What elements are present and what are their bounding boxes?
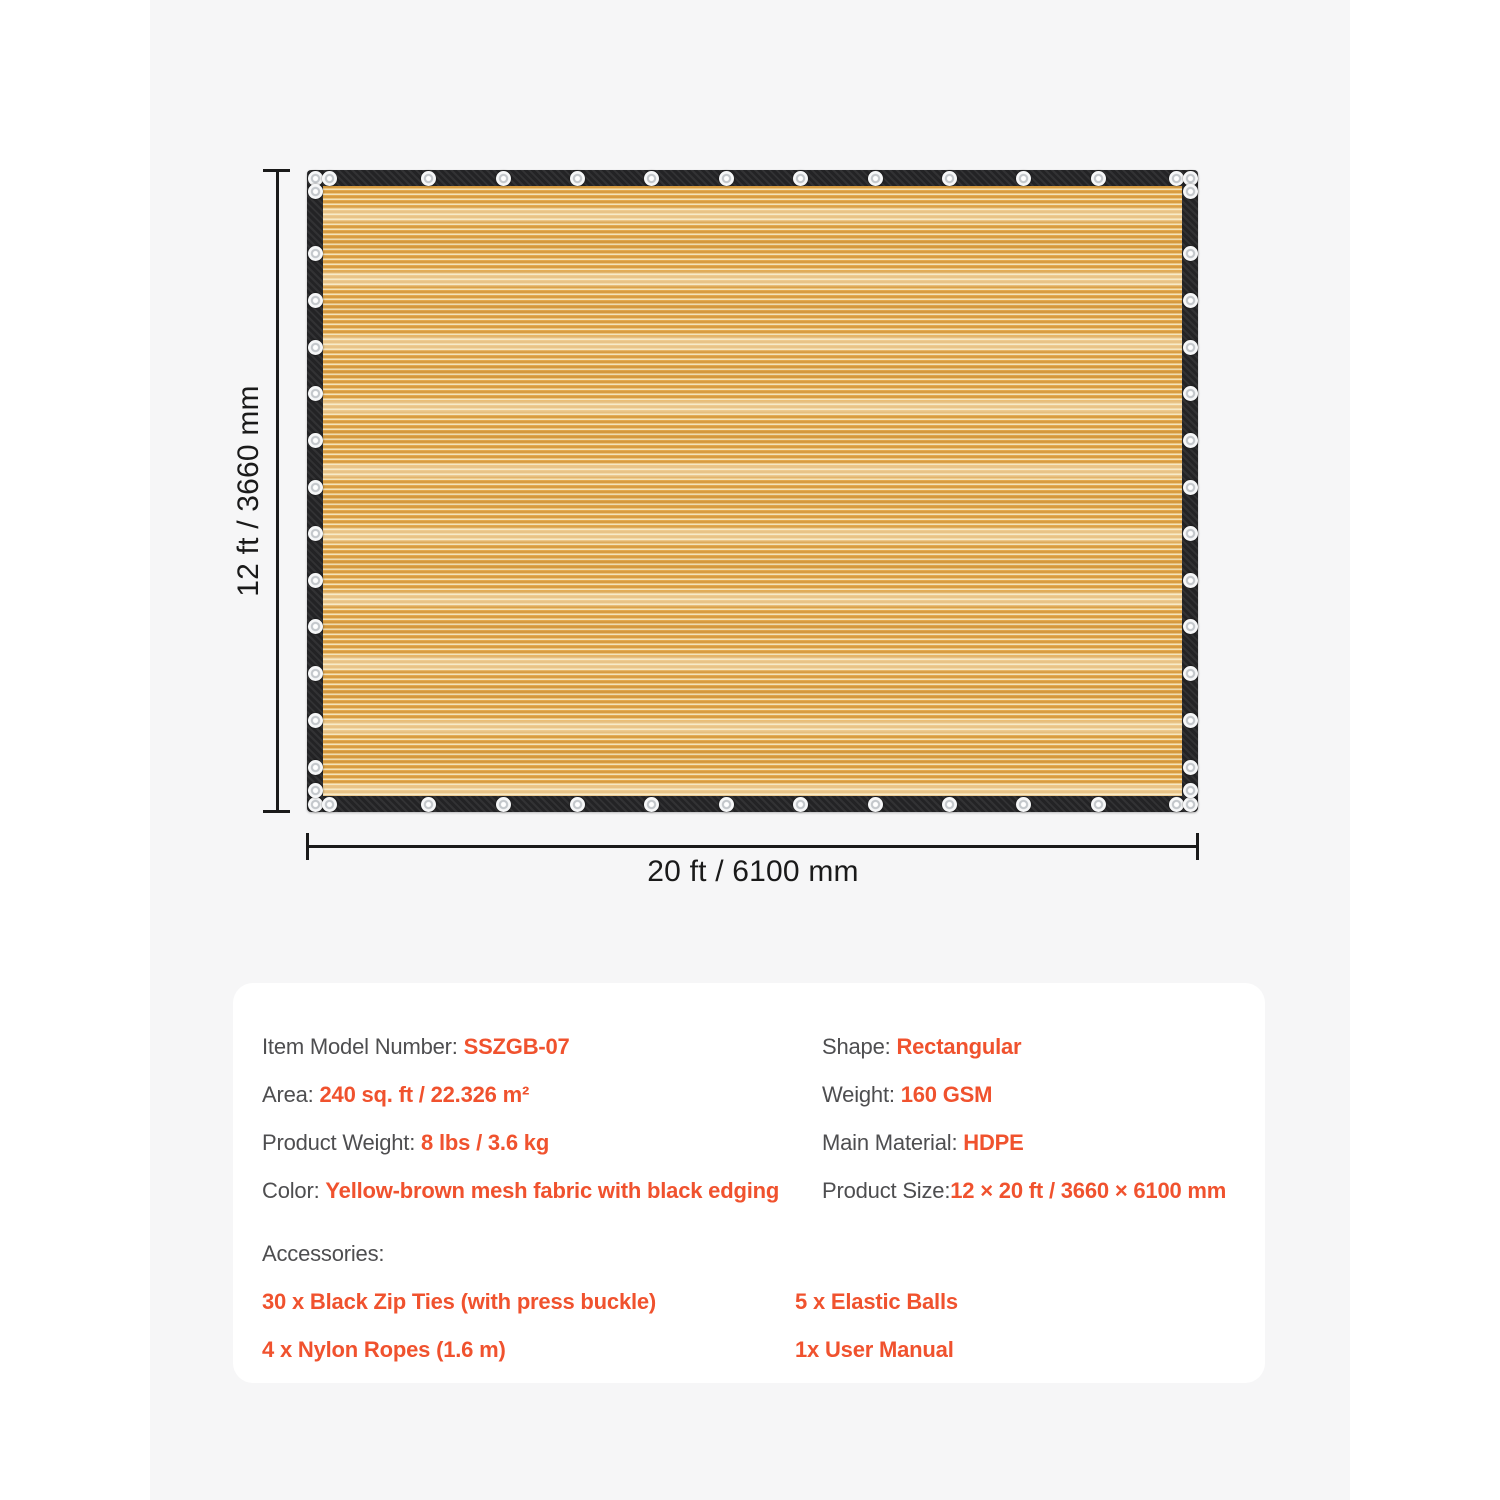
spec-value: 8 lbs / 3.6 kg <box>421 1130 549 1155</box>
grommet-icon <box>1016 797 1031 812</box>
spec-row-shape: Shape: Rectangular <box>822 1036 1226 1040</box>
accessory-text: 5 x Elastic Balls <box>795 1289 958 1314</box>
spec-label: Item Model Number: <box>262 1034 464 1059</box>
grommet-icon <box>1183 433 1198 448</box>
accessory-item-elastic-balls: 5 x Elastic Balls <box>795 1291 958 1295</box>
grommet-icon <box>308 713 323 728</box>
grommet-icon <box>308 760 323 775</box>
grommet-icon <box>308 293 323 308</box>
grommet-icon <box>1183 783 1198 798</box>
accessories-grid: 30 x Black Zip Ties (with press buckle) … <box>262 1269 958 1365</box>
accessory-item-zip-ties: 30 x Black Zip Ties (with press buckle) <box>262 1291 795 1295</box>
grommet-icon <box>1183 171 1198 186</box>
grommet-icon <box>570 171 585 186</box>
grommet-icon <box>322 171 337 186</box>
width-dimension-cap-right <box>1196 833 1199 860</box>
grommet-icon <box>308 480 323 495</box>
grommet-icon <box>1183 184 1198 199</box>
grommet-icon <box>308 619 323 634</box>
grommet-icon <box>308 171 323 186</box>
spec-label: Main Material: <box>822 1130 963 1155</box>
grommet-icon <box>1183 760 1198 775</box>
spec-value: 12 × 20 ft / 3660 × 6100 mm <box>950 1178 1226 1203</box>
spec-value: HDPE <box>963 1130 1023 1155</box>
grommet-icon <box>308 386 323 401</box>
grommet-icon <box>1183 619 1198 634</box>
grommet-icon <box>570 797 585 812</box>
grommet-icon <box>421 171 436 186</box>
grommet-icon <box>1183 666 1198 681</box>
grommet-icon <box>308 526 323 541</box>
grommet-icon <box>308 797 323 812</box>
spec-value: 160 GSM <box>901 1082 993 1107</box>
grommet-icon <box>868 171 883 186</box>
grommet-icon <box>1169 171 1184 186</box>
spec-label: Weight: <box>822 1082 901 1107</box>
grommet-icon <box>1183 573 1198 588</box>
shade-cloth-image <box>307 170 1198 812</box>
spec-value: Rectangular <box>896 1034 1021 1059</box>
accessory-text: 30 x Black Zip Ties (with press buckle) <box>262 1289 656 1314</box>
spec-row-product-size: Product Size:12 × 20 ft / 3660 × 6100 mm <box>822 1180 1226 1184</box>
height-dimension-label: 12 ft / 3660 mm <box>232 385 266 596</box>
spec-label: Shape: <box>822 1034 896 1059</box>
specs-grid: Item Model Number: SSZGB-07 Area: 240 sq… <box>262 1014 1226 1206</box>
grommet-icon <box>644 797 659 812</box>
grommet-icon <box>942 797 957 812</box>
spec-row-color: Color: Yellow-brown mesh fabric with bla… <box>262 1180 822 1184</box>
grommet-icon <box>496 797 511 812</box>
grommet-icon <box>644 171 659 186</box>
grommet-icon <box>496 171 511 186</box>
specs-panel: Item Model Number: SSZGB-07 Area: 240 sq… <box>233 983 1265 1383</box>
grommet-icon <box>322 797 337 812</box>
grommet-icon <box>308 246 323 261</box>
accessory-text: 1x User Manual <box>795 1337 954 1362</box>
spec-value: 240 sq. ft / 22.326 m² <box>320 1082 530 1107</box>
accessory-item-user-manual: 1x User Manual <box>795 1339 958 1343</box>
width-dimension-label: 20 ft / 6100 mm <box>647 855 858 889</box>
spec-value: Yellow-brown mesh fabric with black edgi… <box>325 1178 779 1203</box>
spec-row-weight: Weight: 160 GSM <box>822 1084 1226 1088</box>
spec-label: Area: <box>262 1082 320 1107</box>
grommet-icon <box>308 433 323 448</box>
grommet-icon <box>1016 171 1031 186</box>
grommet-icon <box>421 797 436 812</box>
spec-label: Product Size: <box>822 1178 950 1203</box>
grommet-icon <box>1169 797 1184 812</box>
height-dimension-line <box>276 170 279 813</box>
grommet-icon <box>1091 797 1106 812</box>
mesh-fabric-texture <box>323 186 1182 796</box>
grommet-icon <box>719 797 734 812</box>
spec-row-item-model-number: Item Model Number: SSZGB-07 <box>262 1036 822 1040</box>
grommet-icon <box>1183 246 1198 261</box>
grommet-icon <box>308 340 323 355</box>
grommet-icon <box>1183 797 1198 812</box>
accessory-item-nylon-ropes: 4 x Nylon Ropes (1.6 m) <box>262 1339 795 1343</box>
grommet-icon <box>1183 713 1198 728</box>
grommet-icon <box>1183 340 1198 355</box>
height-dimension-cap-top <box>263 169 290 172</box>
grommet-icon <box>308 666 323 681</box>
spec-row-main-material: Main Material: HDPE <box>822 1132 1226 1136</box>
product-spec-infographic: 12 ft / 3660 mm 20 ft / 6100 mm Item Mod… <box>0 0 1500 1500</box>
spec-row-product-weight: Product Weight: 8 lbs / 3.6 kg <box>262 1132 822 1136</box>
spec-value: SSZGB-07 <box>464 1034 570 1059</box>
spec-label: Product Weight: <box>262 1130 421 1155</box>
accessories-title: Accessories: <box>262 1243 384 1265</box>
grommet-icon <box>1183 480 1198 495</box>
width-dimension-cap-left <box>306 833 309 860</box>
grommet-icon <box>719 171 734 186</box>
grommet-icon <box>308 184 323 199</box>
grommet-icon <box>868 797 883 812</box>
spec-label: Color: <box>262 1178 325 1203</box>
grommet-icon <box>1183 293 1198 308</box>
height-dimension-cap-bottom <box>263 810 290 813</box>
grommet-icon <box>942 171 957 186</box>
spec-row-area: Area: 240 sq. ft / 22.326 m² <box>262 1084 822 1088</box>
grommet-icon <box>793 797 808 812</box>
accessory-text: 4 x Nylon Ropes (1.6 m) <box>262 1337 506 1362</box>
grommet-icon <box>308 573 323 588</box>
grommet-icon <box>1091 171 1106 186</box>
width-dimension-line <box>307 845 1198 848</box>
grommet-icon <box>793 171 808 186</box>
grommet-icon <box>308 783 323 798</box>
grommet-icon <box>1183 526 1198 541</box>
grommet-icon <box>1183 386 1198 401</box>
